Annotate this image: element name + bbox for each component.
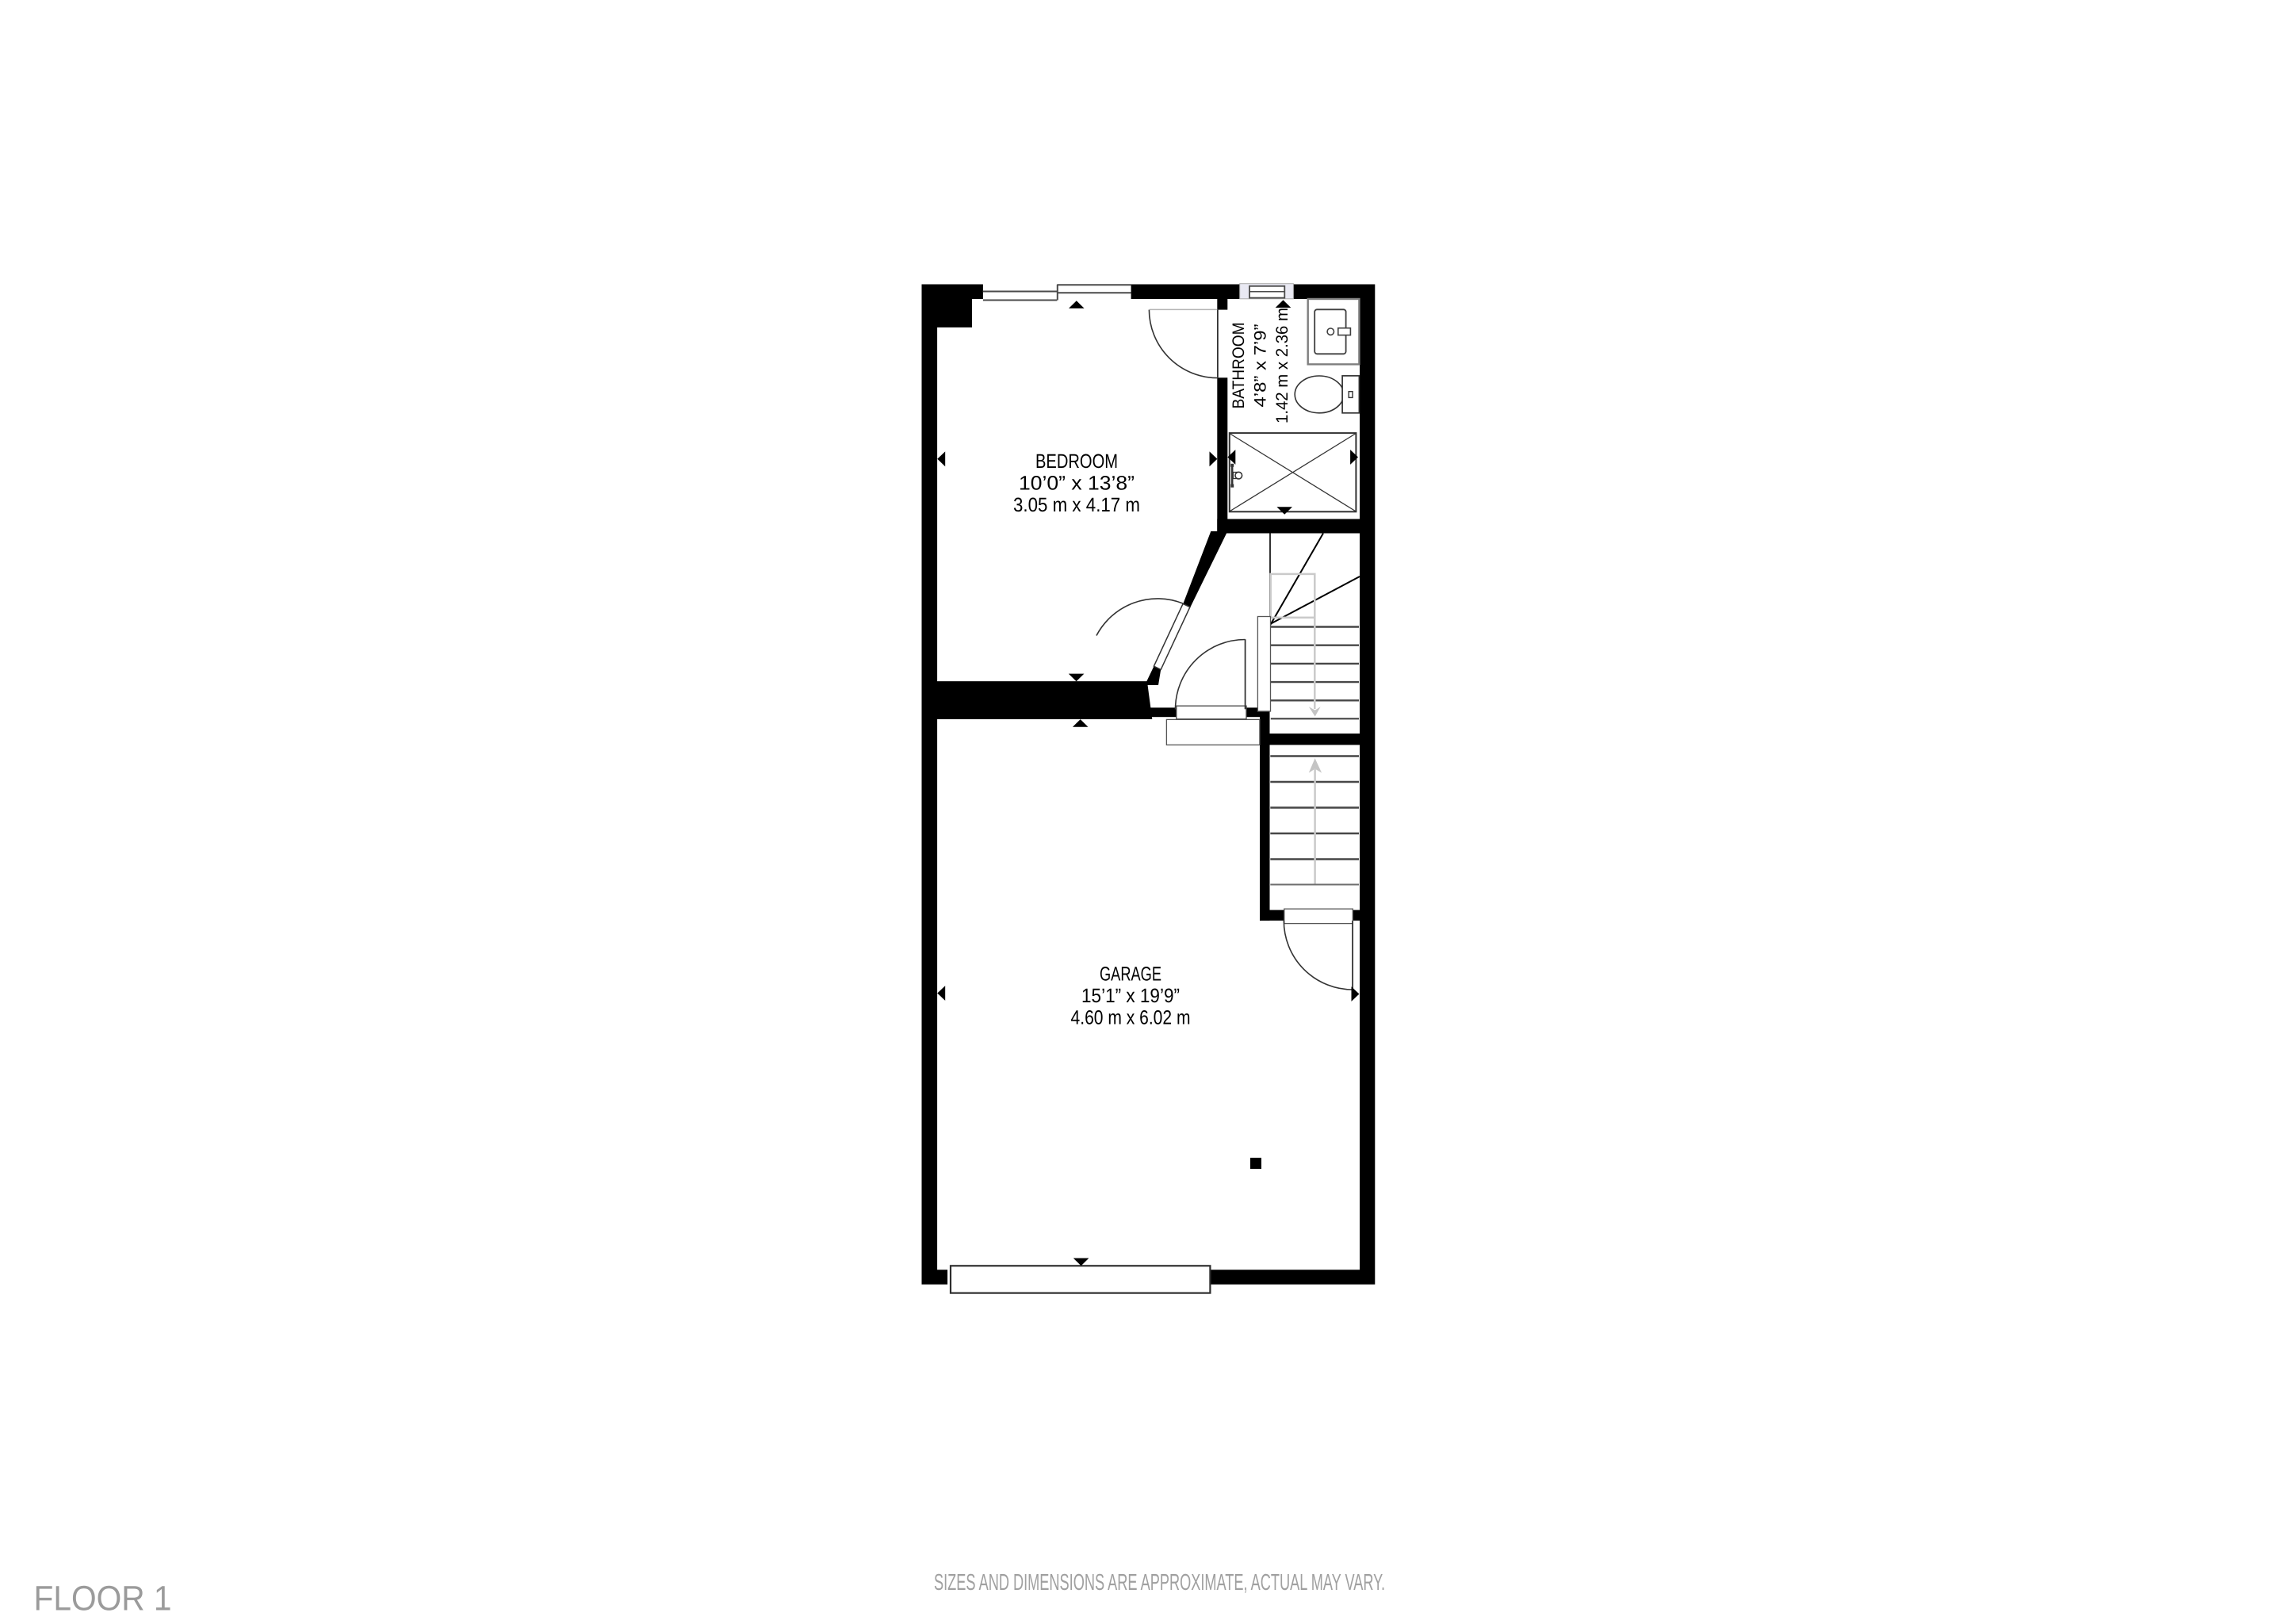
svg-text:FLOOR 1: FLOOR 1 xyxy=(34,1580,172,1618)
svg-text:GARAGE: GARAGE xyxy=(1100,963,1161,986)
svg-text:BATHROOM: BATHROOM xyxy=(1230,323,1248,409)
svg-text:4’8” x 7’9”: 4’8” x 7’9” xyxy=(1251,324,1269,407)
svg-text:4.60 m x 6.02 m: 4.60 m x 6.02 m xyxy=(1071,1007,1191,1029)
svg-text:SIZES AND DIMENSIONS ARE APPRO: SIZES AND DIMENSIONS ARE APPROXIMATE, AC… xyxy=(934,1570,1385,1595)
svg-text:BEDROOM: BEDROOM xyxy=(1035,450,1118,473)
svg-text:3.05 m x 4.17 m: 3.05 m x 4.17 m xyxy=(1013,494,1140,516)
svg-text:15’1” x 19’9”: 15’1” x 19’9” xyxy=(1081,985,1180,1007)
svg-text:1.42 m x 2.36 m: 1.42 m x 2.36 m xyxy=(1273,308,1291,423)
svg-text:10’0” x 13’8”: 10’0” x 13’8” xyxy=(1019,473,1135,495)
